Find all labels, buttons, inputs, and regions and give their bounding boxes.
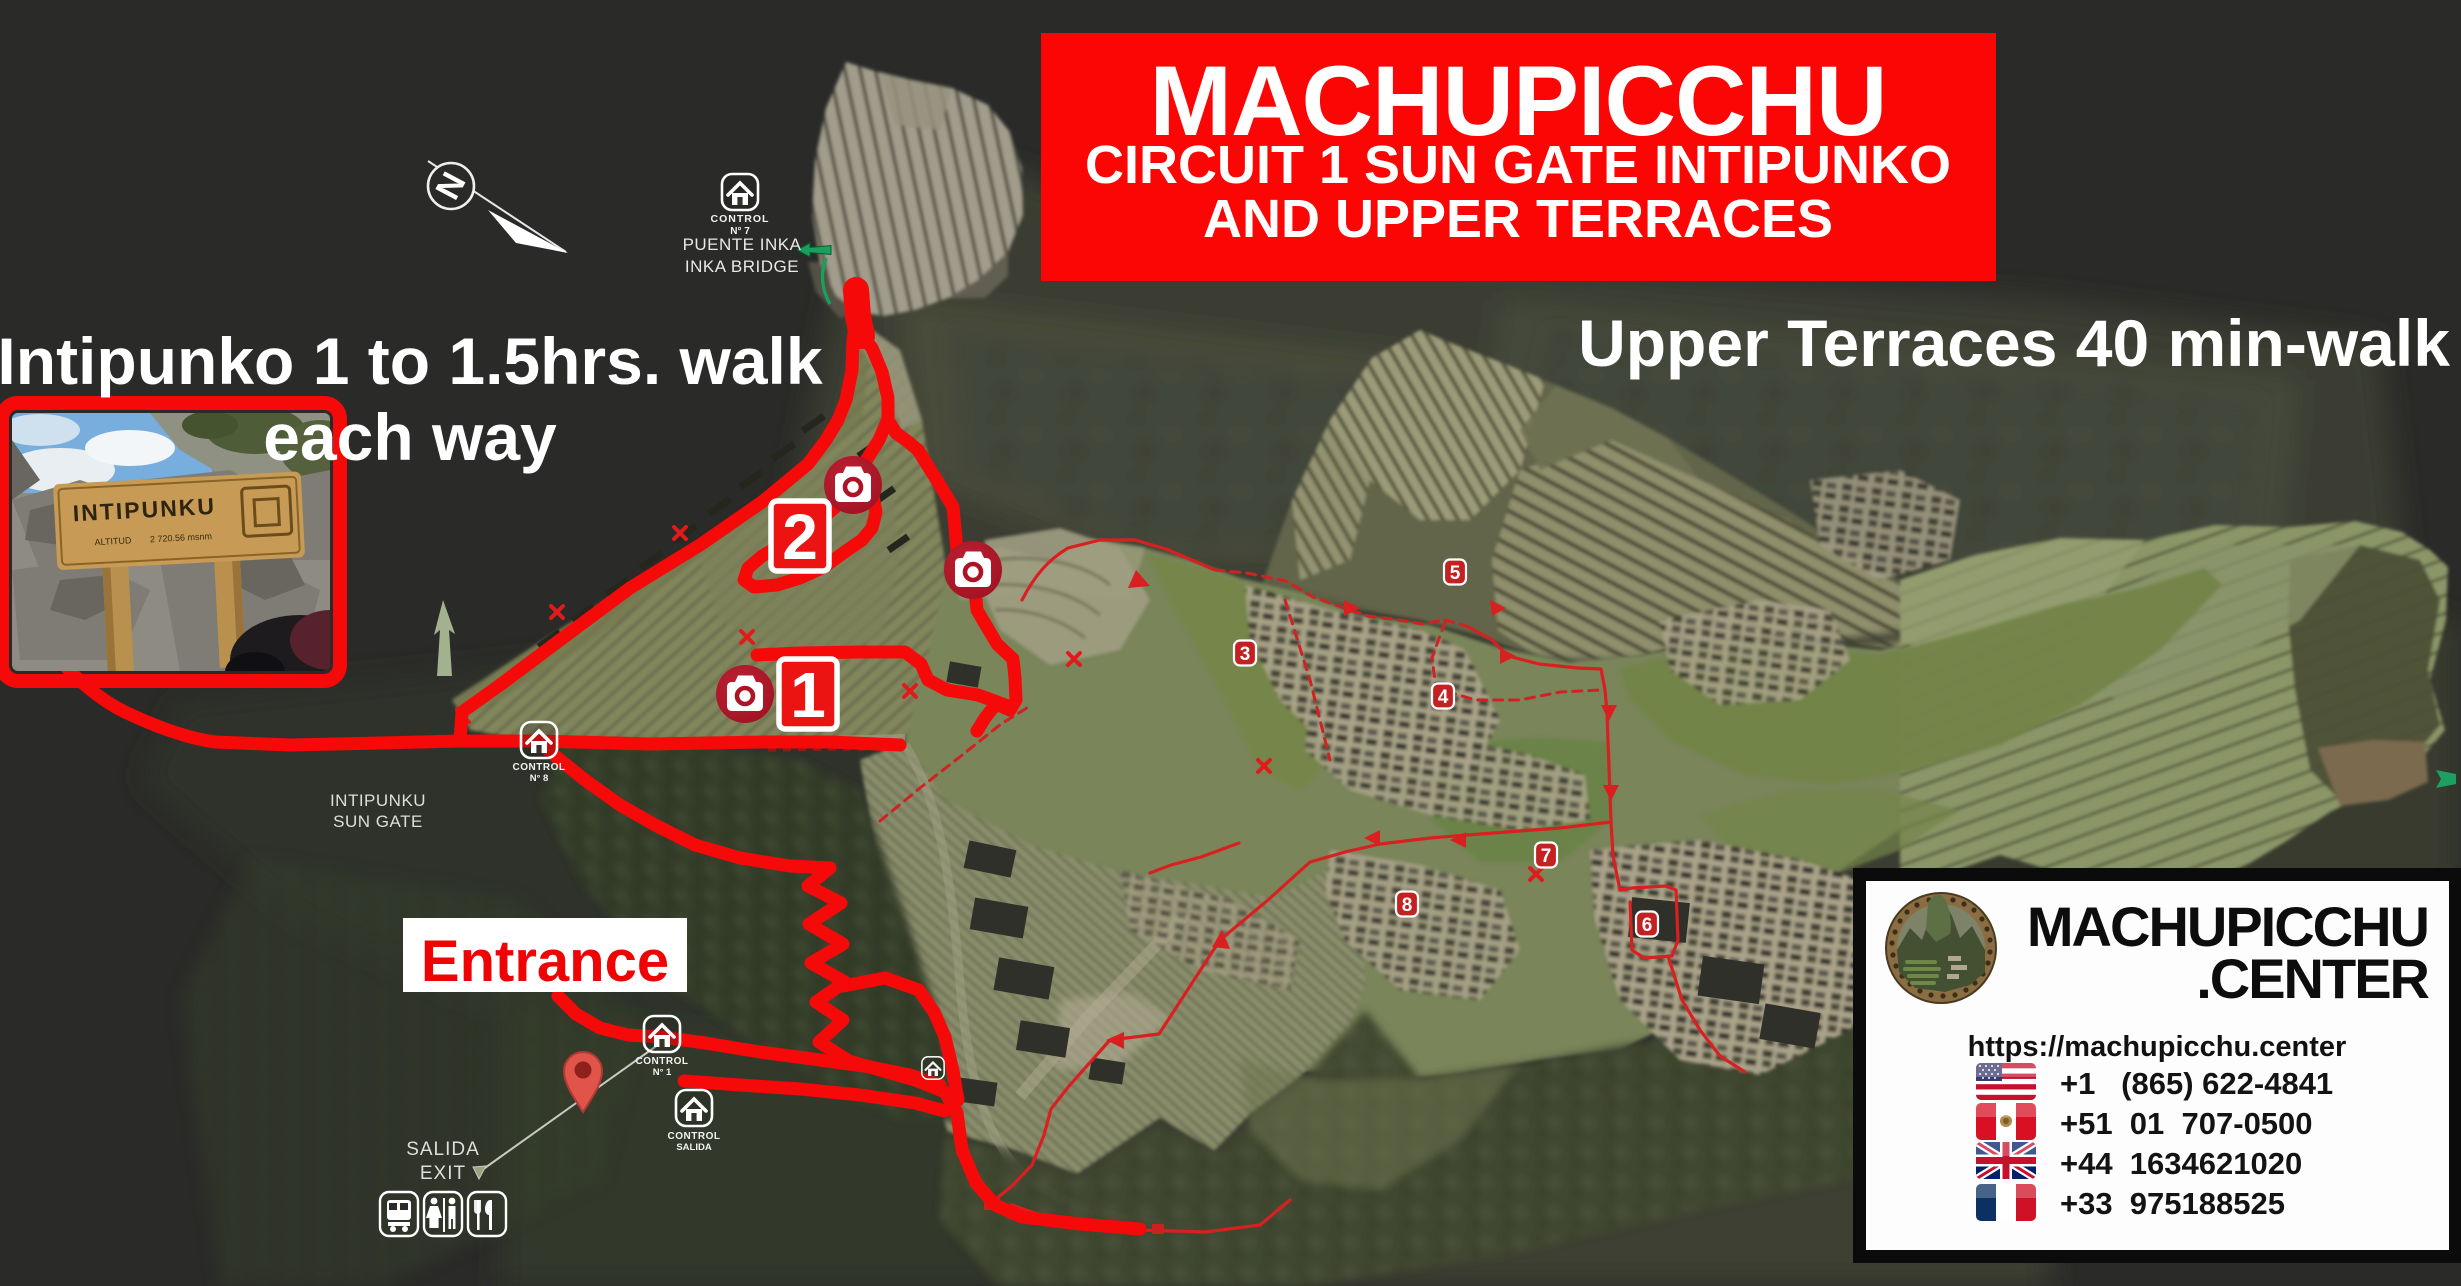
svg-text:N° 8: N° 8	[530, 773, 549, 784]
svg-text:Upper Terraces 40 min-walk: Upper Terraces 40 min-walk	[1578, 306, 2450, 380]
svg-text:.CENTER: .CENTER	[2196, 947, 2429, 1010]
svg-text:7: 7	[1541, 846, 1552, 867]
svg-text:6: 6	[1642, 915, 1653, 936]
svg-text:AND UPPER TERRACES: AND UPPER TERRACES	[1203, 189, 1833, 249]
svg-text:+51 01 707-0500: +51 01 707-0500	[2060, 1106, 2313, 1141]
svg-text:5: 5	[1450, 563, 1461, 584]
svg-text:CIRCUIT 1 SUN GATE INTIPUNKO: CIRCUIT 1 SUN GATE INTIPUNKO	[1085, 135, 1951, 195]
svg-text:CONTROL: CONTROL	[513, 762, 566, 773]
svg-text:+33 975188525: +33 975188525	[2060, 1186, 2285, 1221]
svg-text:SUN GATE: SUN GATE	[333, 812, 423, 831]
svg-text:8: 8	[1402, 895, 1413, 916]
svg-text:EXIT: EXIT	[420, 1163, 466, 1184]
svg-text:CONTROL: CONTROL	[636, 1056, 689, 1067]
svg-text:+1 (865) 622-4841: +1 (865) 622-4841	[2060, 1066, 2333, 1101]
svg-text:each way: each way	[263, 400, 557, 474]
svg-text:1: 1	[790, 659, 826, 731]
svg-text:CONTROL: CONTROL	[668, 1131, 721, 1142]
svg-text:CONTROL: CONTROL	[711, 213, 770, 225]
svg-text:Entrance: Entrance	[421, 929, 669, 994]
svg-text:INTIPUNKU: INTIPUNKU	[330, 791, 426, 810]
svg-text:ALTITUD: ALTITUD	[94, 535, 132, 547]
svg-text:SALIDA: SALIDA	[676, 1142, 712, 1153]
svg-text:3: 3	[1240, 644, 1251, 665]
svg-text:INKA BRIDGE: INKA BRIDGE	[685, 257, 799, 276]
svg-text:PUENTE INKA: PUENTE INKA	[683, 235, 802, 254]
svg-text:N° 1: N° 1	[653, 1067, 672, 1078]
svg-text:Intipunko 1 to 1.5hrs. walk: Intipunko 1 to 1.5hrs. walk	[0, 324, 823, 398]
svg-text:4: 4	[1438, 687, 1449, 708]
svg-text:2: 2	[782, 501, 818, 573]
svg-text:SALIDA: SALIDA	[406, 1139, 480, 1160]
svg-text:+44 1634621020: +44 1634621020	[2060, 1146, 2302, 1181]
svg-text:https://machupicchu.center: https://machupicchu.center	[1968, 1031, 2347, 1063]
